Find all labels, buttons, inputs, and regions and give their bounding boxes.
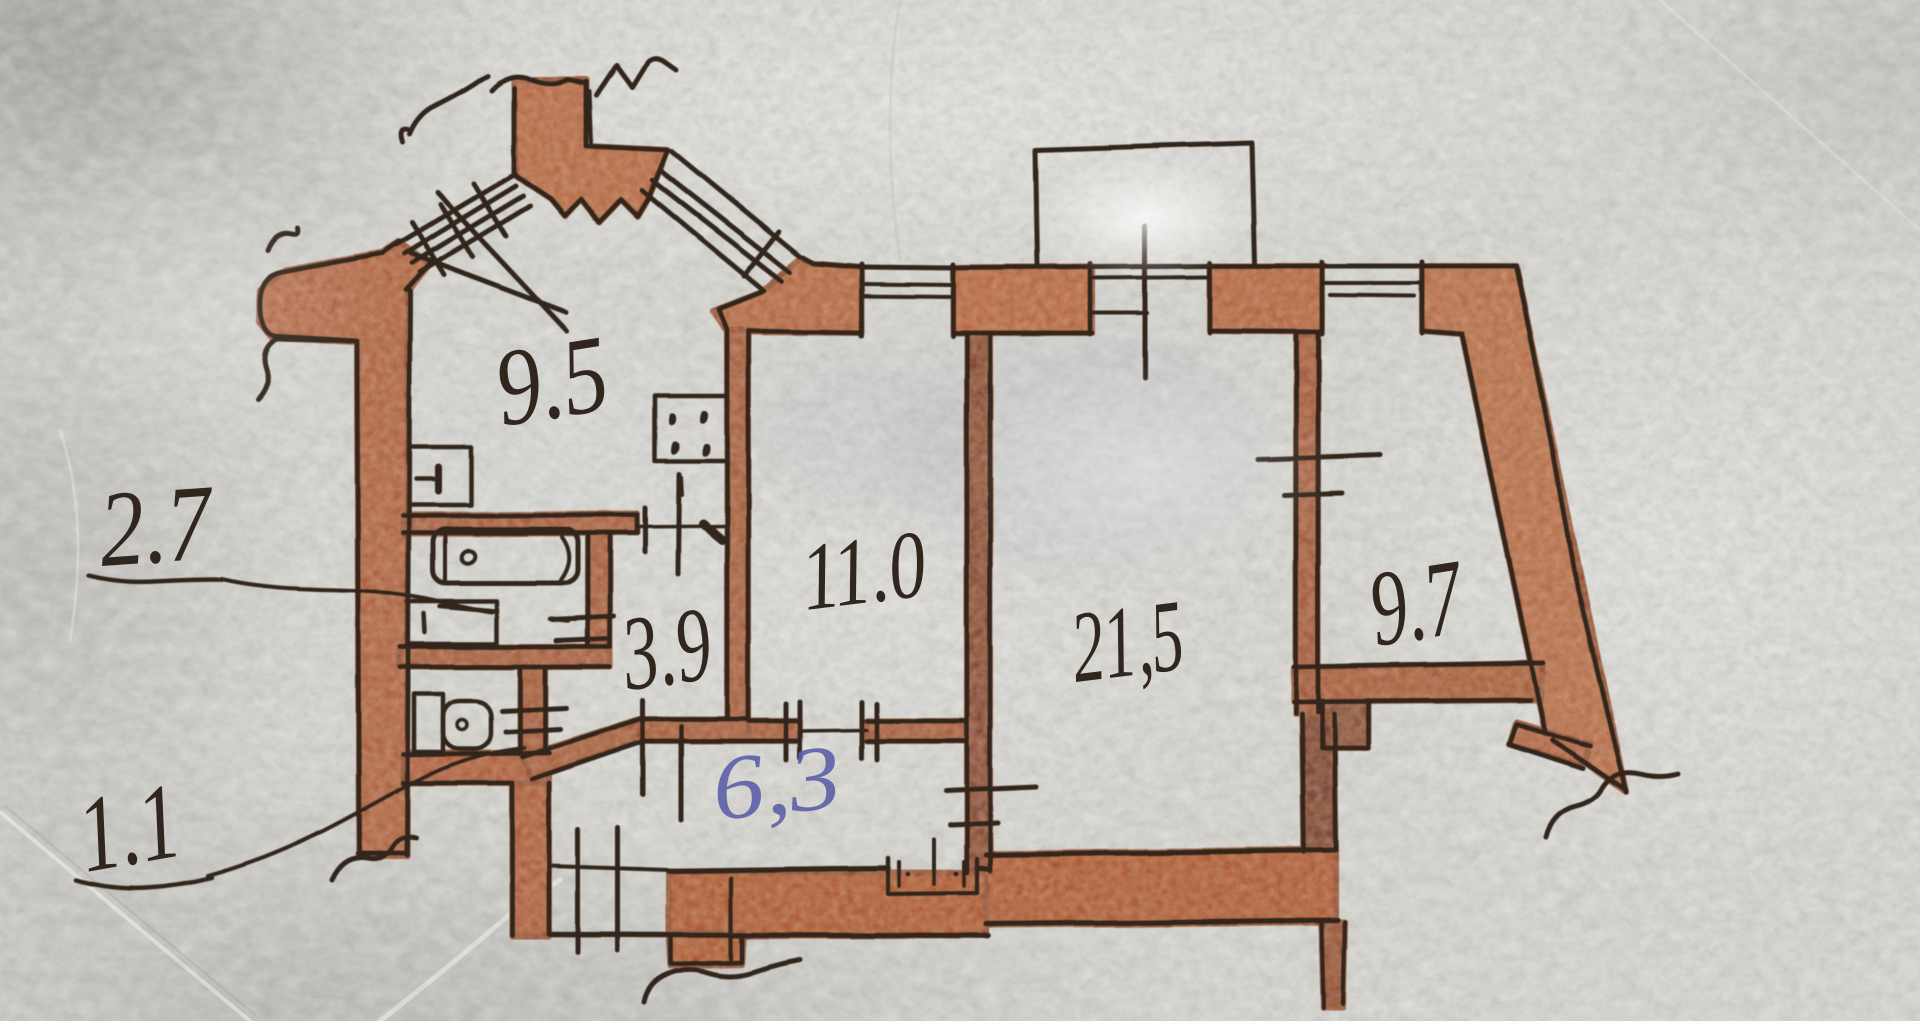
svg-text:11.0: 11.0 [796,510,932,631]
svg-text:1.1: 1.1 [70,761,189,896]
svg-text:6,3: 6,3 [707,725,845,840]
svg-text:21,5: 21,5 [1065,579,1190,705]
svg-text:3.9: 3.9 [614,585,718,713]
svg-text:2.7: 2.7 [95,463,218,590]
svg-text:9.5: 9.5 [487,312,617,450]
